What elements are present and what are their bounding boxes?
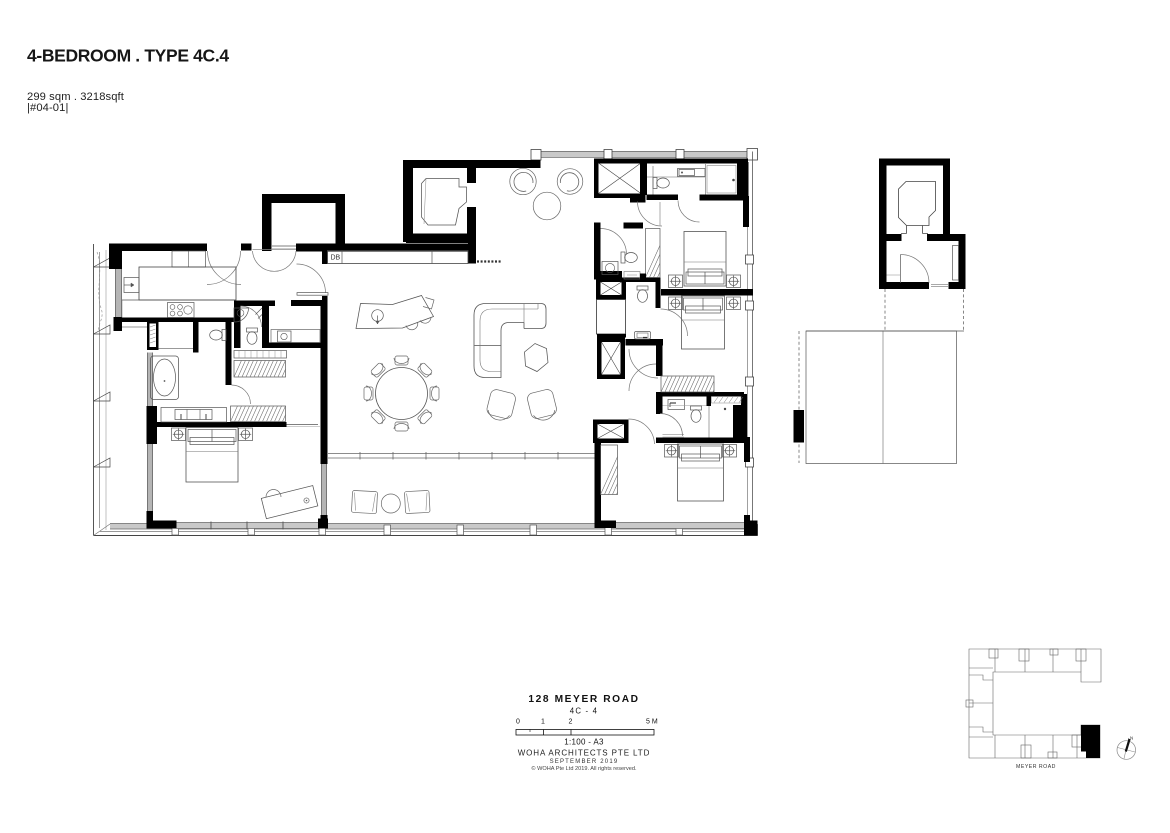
svg-text:1: 1: [541, 719, 545, 726]
svg-text:N: N: [1130, 736, 1133, 741]
svg-text:1:100 - A3: 1:100 - A3: [564, 738, 604, 747]
svg-text:WOHA ARCHITECTS PTE LTD: WOHA ARCHITECTS PTE LTD: [518, 749, 651, 758]
svg-text:5 M: 5 M: [646, 719, 658, 726]
svg-text:MEYER ROAD: MEYER ROAD: [1016, 764, 1056, 770]
svg-text:4C - 4: 4C - 4: [570, 707, 598, 716]
svg-text:SEPTEMBER 2019: SEPTEMBER 2019: [550, 759, 619, 765]
svg-text:2: 2: [569, 719, 573, 726]
svg-text:128 MEYER ROAD: 128 MEYER ROAD: [528, 694, 639, 705]
svg-text:DB: DB: [331, 255, 341, 262]
svg-text:© WOHA Pte Ltd 2019. All righ: © WOHA Pte Ltd 2019. All rights reserved…: [531, 765, 637, 772]
svg-text:0: 0: [516, 719, 520, 726]
svg-text:4-BEDROOM . TYPE 4C.4: 4-BEDROOM . TYPE 4C.4: [27, 46, 229, 66]
svg-text:|#04-01|: |#04-01|: [27, 102, 68, 114]
